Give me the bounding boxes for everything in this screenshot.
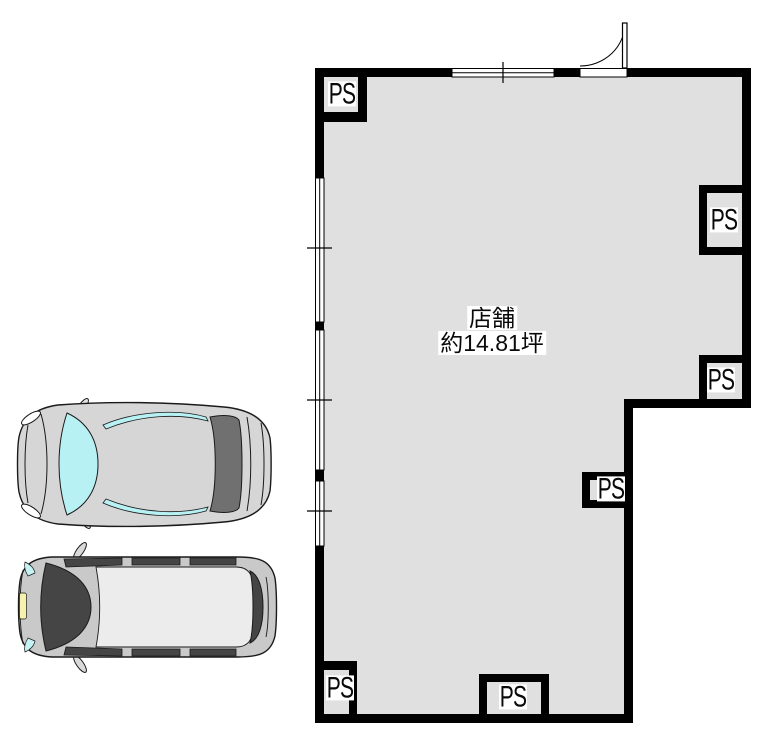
- room-area-label: 約14.81坪: [438, 331, 546, 355]
- ps-label-right-lower: PS: [707, 367, 735, 392]
- door-swing-arc: [580, 23, 625, 66]
- door-leaf: [623, 23, 628, 68]
- sedan-rear-window: [210, 416, 242, 513]
- ps-label-top-left: PS: [328, 81, 356, 106]
- shop-floor: [324, 77, 742, 714]
- room-name-label: 店舗: [467, 306, 517, 330]
- sedan-top-view: [18, 397, 272, 530]
- floorplan-drawing: [0, 0, 774, 736]
- ps-label-bottom-left: PS: [326, 675, 354, 700]
- entrance-door: [580, 23, 627, 77]
- minivan-top-view: [19, 541, 277, 674]
- van-license-plate: [20, 593, 27, 619]
- van-roof: [96, 567, 254, 647]
- ps-label-right-upper: PS: [710, 207, 738, 232]
- ps-label-bottom-center: PS: [499, 684, 527, 709]
- door-opening: [580, 69, 627, 78]
- ps-label-inner-middle: PS: [597, 476, 625, 501]
- room-label: 店舗 約14.81坪: [438, 306, 546, 356]
- floorplan-canvas: PS PS PS PS PS PS 店舗 約14.81坪: [0, 0, 774, 736]
